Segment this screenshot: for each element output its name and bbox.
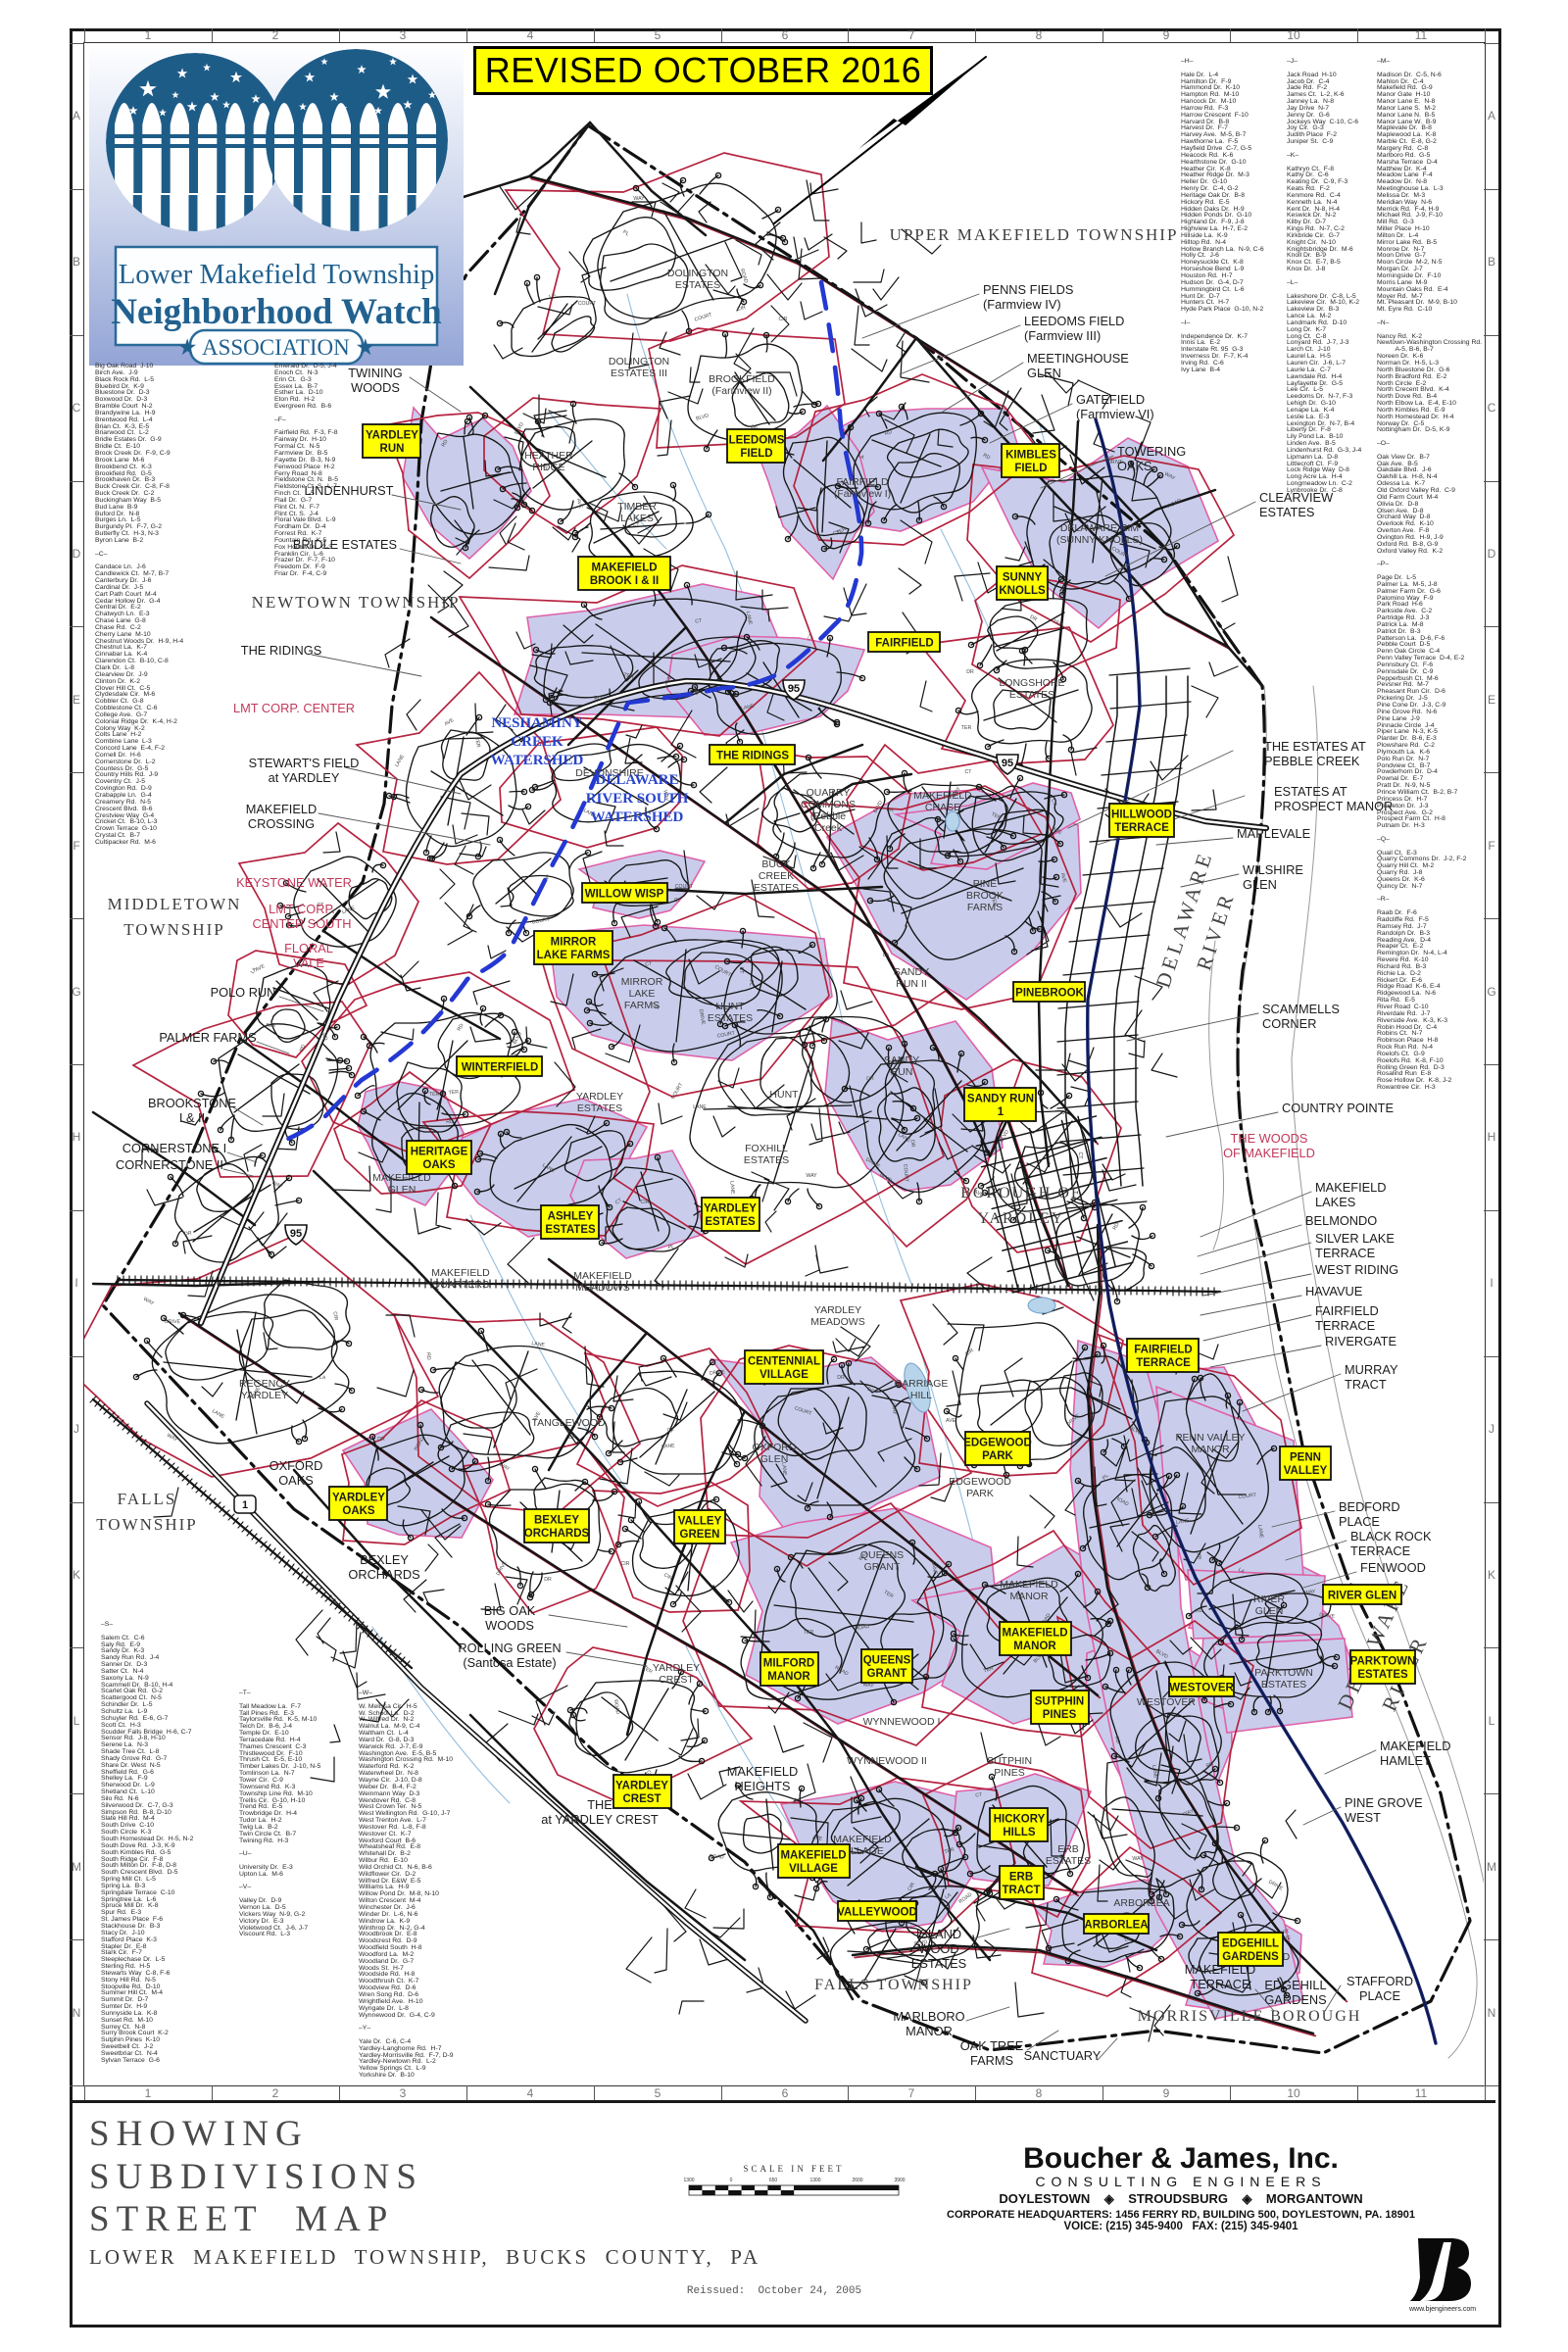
svg-text:0: 0 xyxy=(730,2178,733,2183)
svg-text:1300: 1300 xyxy=(683,2178,694,2183)
svg-text:www.bjengineers.com: www.bjengineers.com xyxy=(1408,2306,1476,2313)
svg-text:SCALE IN FEET: SCALE IN FEET xyxy=(744,2164,845,2174)
svg-text:3900: 3900 xyxy=(894,2178,905,2183)
svg-text:★ ASSOCIATION ★: ★ ASSOCIATION ★ xyxy=(177,335,375,360)
svg-text:Lower Makefield Township: Lower Makefield Township xyxy=(119,259,435,290)
svg-text:Neighborhood Watch: Neighborhood Watch xyxy=(111,292,442,332)
svg-text:1300: 1300 xyxy=(809,2178,820,2183)
svg-text:650: 650 xyxy=(769,2178,778,2183)
svg-text:2600: 2600 xyxy=(852,2178,862,2183)
